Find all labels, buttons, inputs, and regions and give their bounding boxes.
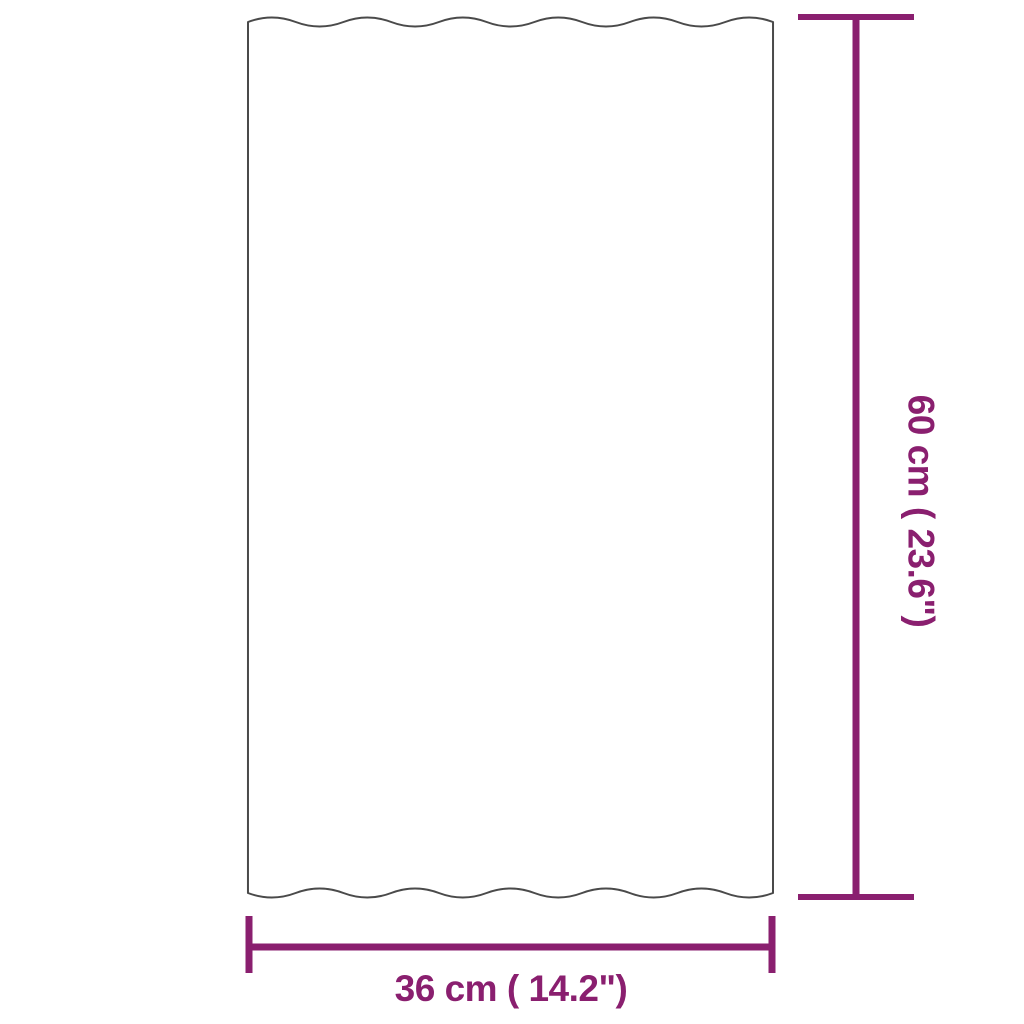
width-dimension-label: 36 cm ( 14.2") [395,968,628,1009]
diagram-canvas: 60 cm ( 23.6") 36 cm ( 14.2") [0,0,1024,1024]
panel-outline [248,18,773,898]
height-dimension-label: 60 cm ( 23.6") [901,395,942,628]
dimension-diagram: 60 cm ( 23.6") 36 cm ( 14.2") [0,0,1024,1024]
